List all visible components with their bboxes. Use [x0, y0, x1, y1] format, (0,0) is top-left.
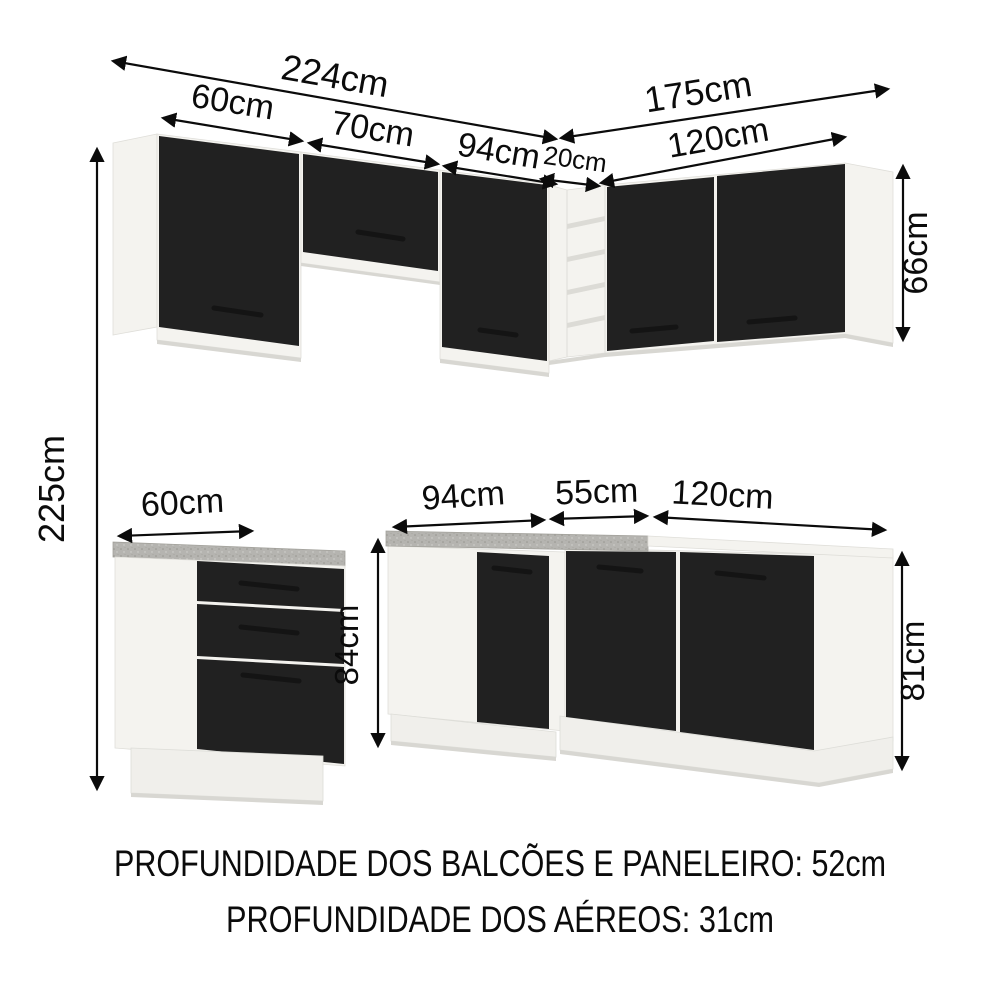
dim-label-224cm: 224cm	[278, 46, 392, 105]
base-corner-angled-door	[566, 551, 676, 731]
dim-label-66cm: 66cm	[897, 211, 935, 294]
upper-right-cabinet-run	[549, 163, 893, 365]
kitchen-diagram-svg: 224cm 60cm 70cm 94cm 20cm 175cm 120cm 66…	[0, 0, 1000, 1000]
dim-line-120cm-lower	[655, 517, 885, 530]
upper-cabinet-120cm-door-left	[607, 177, 714, 351]
base-drawer-unit-60cm	[113, 542, 345, 805]
dim-label-84cm: 84cm	[328, 605, 365, 686]
dim-line-94cm-lower	[394, 520, 544, 527]
base-corner-front-door	[477, 552, 549, 729]
dim-label-94cm-lower: 94cm	[420, 474, 506, 518]
base-right-door	[680, 552, 814, 750]
footnote-balcoes-paneleiro: PROFUNDIDADE DOS BALCÕES E PANELEIRO: 52…	[114, 843, 886, 884]
upper-cabinet-120cm-door-right	[717, 164, 845, 342]
base-60cm-drawer-2	[197, 604, 344, 664]
dim-line-60cm-lower	[119, 531, 252, 536]
base-60cm-drawer-3	[197, 659, 344, 764]
product-dimension-diagram: 224cm 60cm 70cm 94cm 20cm 175cm 120cm 66…	[0, 0, 1000, 1000]
dim-label-55cm: 55cm	[554, 472, 638, 513]
dim-label-81cm: 81cm	[894, 621, 931, 702]
dim-label-60cm-upper: 60cm	[189, 77, 277, 128]
upper-left-cabinet-run	[113, 134, 549, 377]
dim-label-20cm: 20cm	[542, 140, 609, 179]
dim-label-120cm-upper: 120cm	[665, 111, 772, 166]
dim-label-225cm: 225cm	[31, 435, 72, 543]
dim-label-120cm-lower: 120cm	[671, 473, 775, 516]
upper-cabinet-70cm-door	[303, 154, 438, 271]
base-corner-assembly	[386, 531, 893, 787]
dim-line-55cm	[551, 516, 647, 519]
upper-cabinet-60cm-door	[159, 136, 299, 346]
upper-left-end-panel	[113, 134, 157, 335]
base-60cm-plinth	[131, 748, 323, 801]
dim-label-60cm-lower: 60cm	[140, 482, 225, 524]
footnote-aereos: PROFUNDIDADE DOS AÉREOS: 31cm	[226, 899, 774, 940]
depth-footnotes: PROFUNDIDADE DOS BALCÕES E PANELEIRO: 52…	[114, 843, 886, 940]
